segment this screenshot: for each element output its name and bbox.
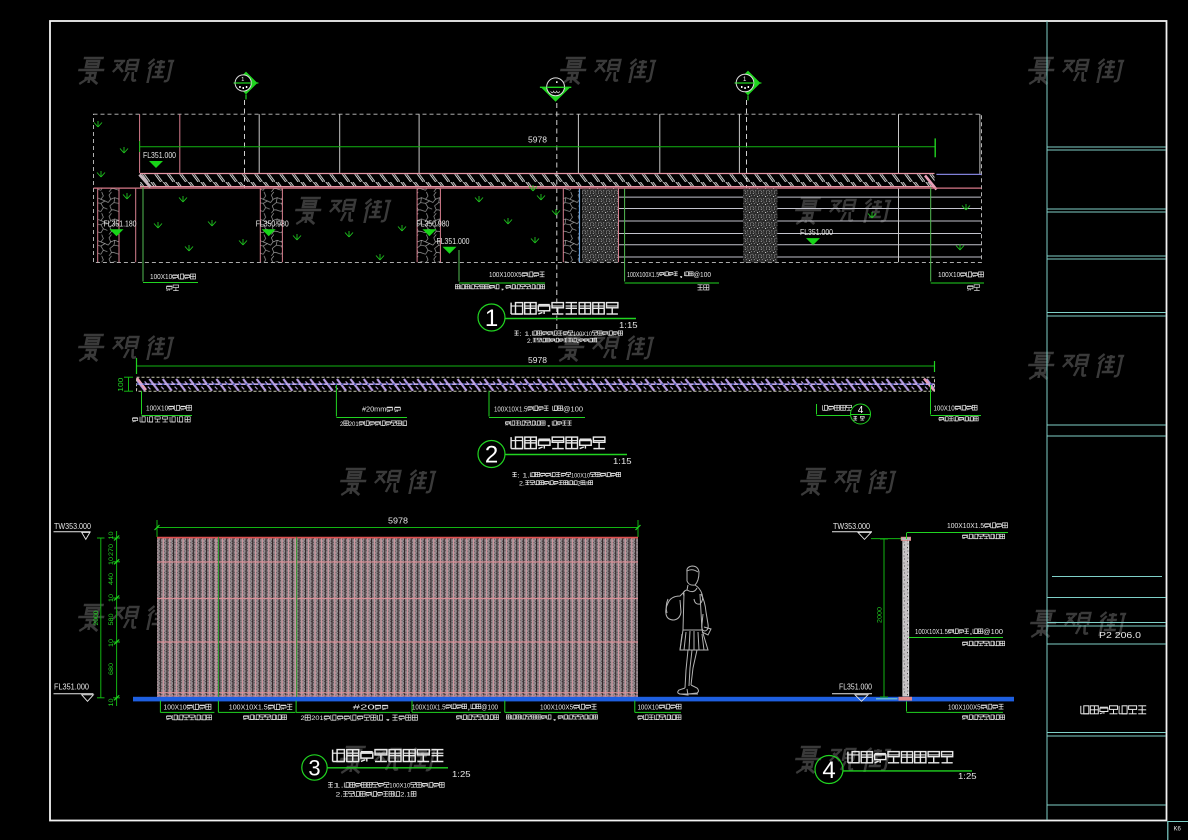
svg-text:10: 10 (108, 557, 115, 565)
svg-text:2000: 2000 (93, 610, 100, 625)
svg-text:#: # (585, 481, 588, 488)
svg-text:2.: 2. (336, 791, 343, 798)
svg-text:,: , (384, 715, 393, 722)
svg-text:100X10X1.5: 100X10X1.5 (229, 703, 268, 711)
svg-text:4: 4 (822, 757, 835, 784)
svg-text:@100: @100 (693, 270, 711, 279)
svg-text:,: , (551, 715, 558, 722)
svg-text:100X10X1.5: 100X10X1.5 (947, 522, 984, 530)
svg-text:100X10: 100X10 (938, 271, 960, 279)
svg-text:5978: 5978 (528, 355, 547, 365)
svg-text:100X100X5: 100X100X5 (540, 703, 573, 711)
svg-text:100X10: 100X10 (638, 703, 659, 711)
svg-text:@100: @100 (563, 404, 583, 413)
svg-text:10: 10 (108, 639, 115, 647)
svg-text:@100: @100 (481, 703, 498, 711)
svg-text:K6: K6 (1174, 826, 1182, 833)
svg-text:P2 206.0: P2 206.0 (1099, 631, 1142, 640)
svg-text:2.: 2. (527, 338, 533, 345)
svg-text:,: , (467, 703, 470, 711)
svg-text:100X10: 100X10 (571, 472, 590, 479)
svg-text:FL351.000: FL351.000 (839, 683, 872, 692)
svg-text:2.1: 2.1 (400, 791, 411, 798)
svg-text:: 1.: : 1. (519, 331, 532, 338)
svg-text:10: 10 (108, 594, 115, 602)
svg-text:1:15: 1:15 (613, 457, 632, 466)
svg-text:2: 2 (301, 715, 305, 722)
svg-text:#20: #20 (353, 703, 375, 711)
svg-text:1: 1 (485, 305, 498, 332)
svg-text:FL351.180: FL351.180 (104, 219, 137, 228)
svg-text:5978: 5978 (388, 515, 408, 525)
svg-text:100X100X5: 100X100X5 (489, 270, 522, 279)
svg-text:100X10: 100X10 (389, 782, 410, 789)
svg-text:5978: 5978 (528, 134, 547, 144)
svg-text:100X10: 100X10 (146, 405, 168, 413)
svg-text:680: 680 (108, 663, 115, 675)
svg-text:201: 201 (349, 421, 359, 428)
svg-text:: 1.: : 1. (517, 472, 530, 479)
svg-text:100X10X1.5: 100X10X1.5 (412, 703, 446, 711)
svg-text:FL351.000: FL351.000 (800, 228, 833, 237)
svg-text:1:25: 1:25 (958, 772, 977, 781)
svg-text:#20mm: #20mm (362, 404, 386, 413)
svg-text:TW353.000: TW353.000 (833, 522, 870, 531)
svg-text:,: , (546, 421, 553, 428)
svg-text:100X10X1.5: 100X10X1.5 (915, 628, 948, 636)
svg-text:100X10X1.5: 100X10X1.5 (494, 404, 527, 413)
svg-text:1:15: 1:15 (619, 321, 638, 330)
svg-text:TW353.000: TW353.000 (54, 522, 91, 531)
svg-text:FL350.980: FL350.980 (416, 219, 449, 228)
svg-text:2.: 2. (519, 481, 525, 488)
svg-text:100X100X5: 100X100X5 (948, 703, 981, 711)
svg-text:100: 100 (118, 378, 125, 392)
svg-text:1:25: 1:25 (452, 770, 471, 779)
svg-text:3: 3 (308, 755, 320, 780)
svg-text:@100: @100 (983, 628, 1003, 636)
svg-text:1.: 1. (333, 782, 344, 789)
svg-text:580: 580 (108, 613, 115, 625)
svg-text:10: 10 (108, 698, 115, 706)
svg-text:2000: 2000 (877, 607, 884, 623)
svg-text:100X10: 100X10 (573, 331, 592, 338)
svg-text:100X100X1.5: 100X100X1.5 (627, 270, 659, 279)
svg-text:100X10: 100X10 (164, 703, 187, 711)
svg-text:2: 2 (577, 338, 580, 345)
svg-text:10: 10 (108, 531, 115, 539)
svg-text:440: 440 (108, 573, 115, 585)
svg-text:FL351.000: FL351.000 (437, 237, 470, 246)
svg-text:201: 201 (311, 715, 324, 722)
svg-text:,: , (499, 285, 506, 292)
svg-text:270: 270 (108, 544, 115, 556)
svg-text:FL350.980: FL350.980 (256, 219, 289, 228)
svg-text:2: 2 (340, 421, 344, 428)
svg-text:,: , (969, 628, 972, 636)
svg-text:2: 2 (485, 441, 498, 468)
svg-text:100X10: 100X10 (150, 273, 172, 281)
svg-text:FL351.000: FL351.000 (143, 151, 176, 160)
svg-text:100X10: 100X10 (934, 405, 955, 413)
svg-text:FL351.000: FL351.000 (54, 683, 89, 692)
svg-text:2: 2 (578, 481, 581, 488)
svg-text:,: , (678, 270, 684, 279)
svg-text:1: 1 (241, 77, 244, 83)
